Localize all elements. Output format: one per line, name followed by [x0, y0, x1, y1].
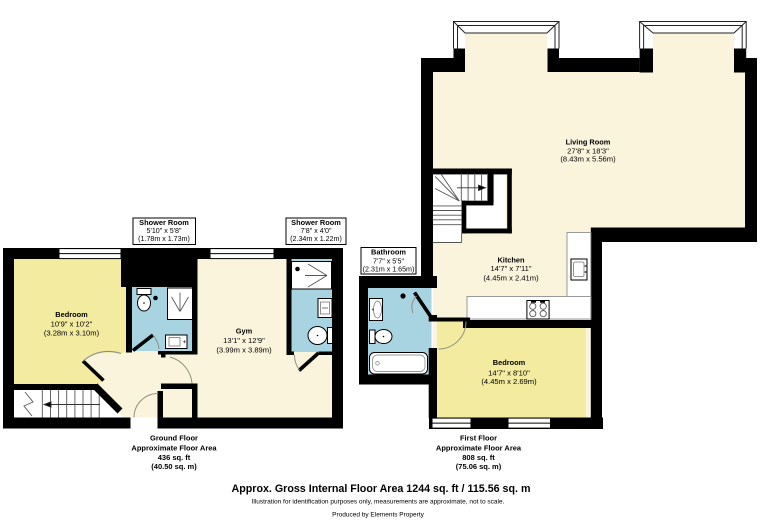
svg-text:(2.31m x 1.65m): (2.31m x 1.65m): [363, 266, 415, 274]
svg-text:(1.78m x 1.73m): (1.78m x 1.73m): [138, 235, 190, 243]
svg-text:808 sq. ft: 808 sq. ft: [462, 453, 495, 462]
svg-text:(3.99m x 3.89m): (3.99m x 3.89m): [216, 346, 272, 355]
svg-text:Illustration for identificatio: Illustration for identification purposes…: [252, 499, 505, 506]
svg-text:10'9" x 10'2": 10'9" x 10'2": [51, 320, 93, 329]
svg-text:Bedroom: Bedroom: [493, 358, 526, 367]
svg-text:Shower Room: Shower Room: [139, 218, 189, 227]
svg-text:Produced by Elements Property: Produced by Elements Property: [332, 512, 425, 519]
svg-text:(40.50 sq. m): (40.50 sq. m): [151, 462, 197, 471]
svg-text:(75.06 sq. m): (75.06 sq. m): [456, 462, 502, 471]
svg-text:Shower Room: Shower Room: [291, 218, 341, 227]
svg-text:(4.45m x 2.41m): (4.45m x 2.41m): [483, 274, 539, 283]
svg-text:First Floor: First Floor: [460, 434, 497, 443]
svg-text:Approximate Floor Area: Approximate Floor Area: [131, 444, 217, 453]
svg-text:Bedroom: Bedroom: [55, 310, 88, 319]
svg-text:(4.45m x 2.69m): (4.45m x 2.69m): [481, 377, 537, 386]
svg-text:5'10" x 5'8": 5'10" x 5'8": [147, 227, 182, 235]
svg-text:(8.43m x 5.56m): (8.43m x 5.56m): [560, 155, 616, 164]
svg-text:Gym: Gym: [236, 327, 253, 336]
svg-text:14'7" x 7'11": 14'7" x 7'11": [490, 264, 531, 273]
svg-text:Bathroom: Bathroom: [371, 248, 406, 257]
svg-text:7'7" x 5'5": 7'7" x 5'5": [373, 258, 404, 266]
svg-text:436 sq. ft: 436 sq. ft: [158, 453, 191, 462]
svg-text:7'8" x 4'0": 7'8" x 4'0": [300, 227, 331, 235]
svg-text:(3.28m x 3.10m): (3.28m x 3.10m): [44, 329, 100, 338]
svg-text:Approximate Floor Area: Approximate Floor Area: [436, 444, 522, 453]
svg-text:(2.34m x 1.22m): (2.34m x 1.22m): [290, 235, 342, 243]
svg-text:Ground Floor: Ground Floor: [150, 434, 198, 443]
svg-text:Living Room: Living Room: [566, 138, 611, 147]
svg-text:Approx. Gross Internal Floor A: Approx. Gross Internal Floor Area 1244 s…: [232, 483, 531, 495]
svg-text:13'1" x 12'9": 13'1" x 12'9": [223, 336, 265, 345]
